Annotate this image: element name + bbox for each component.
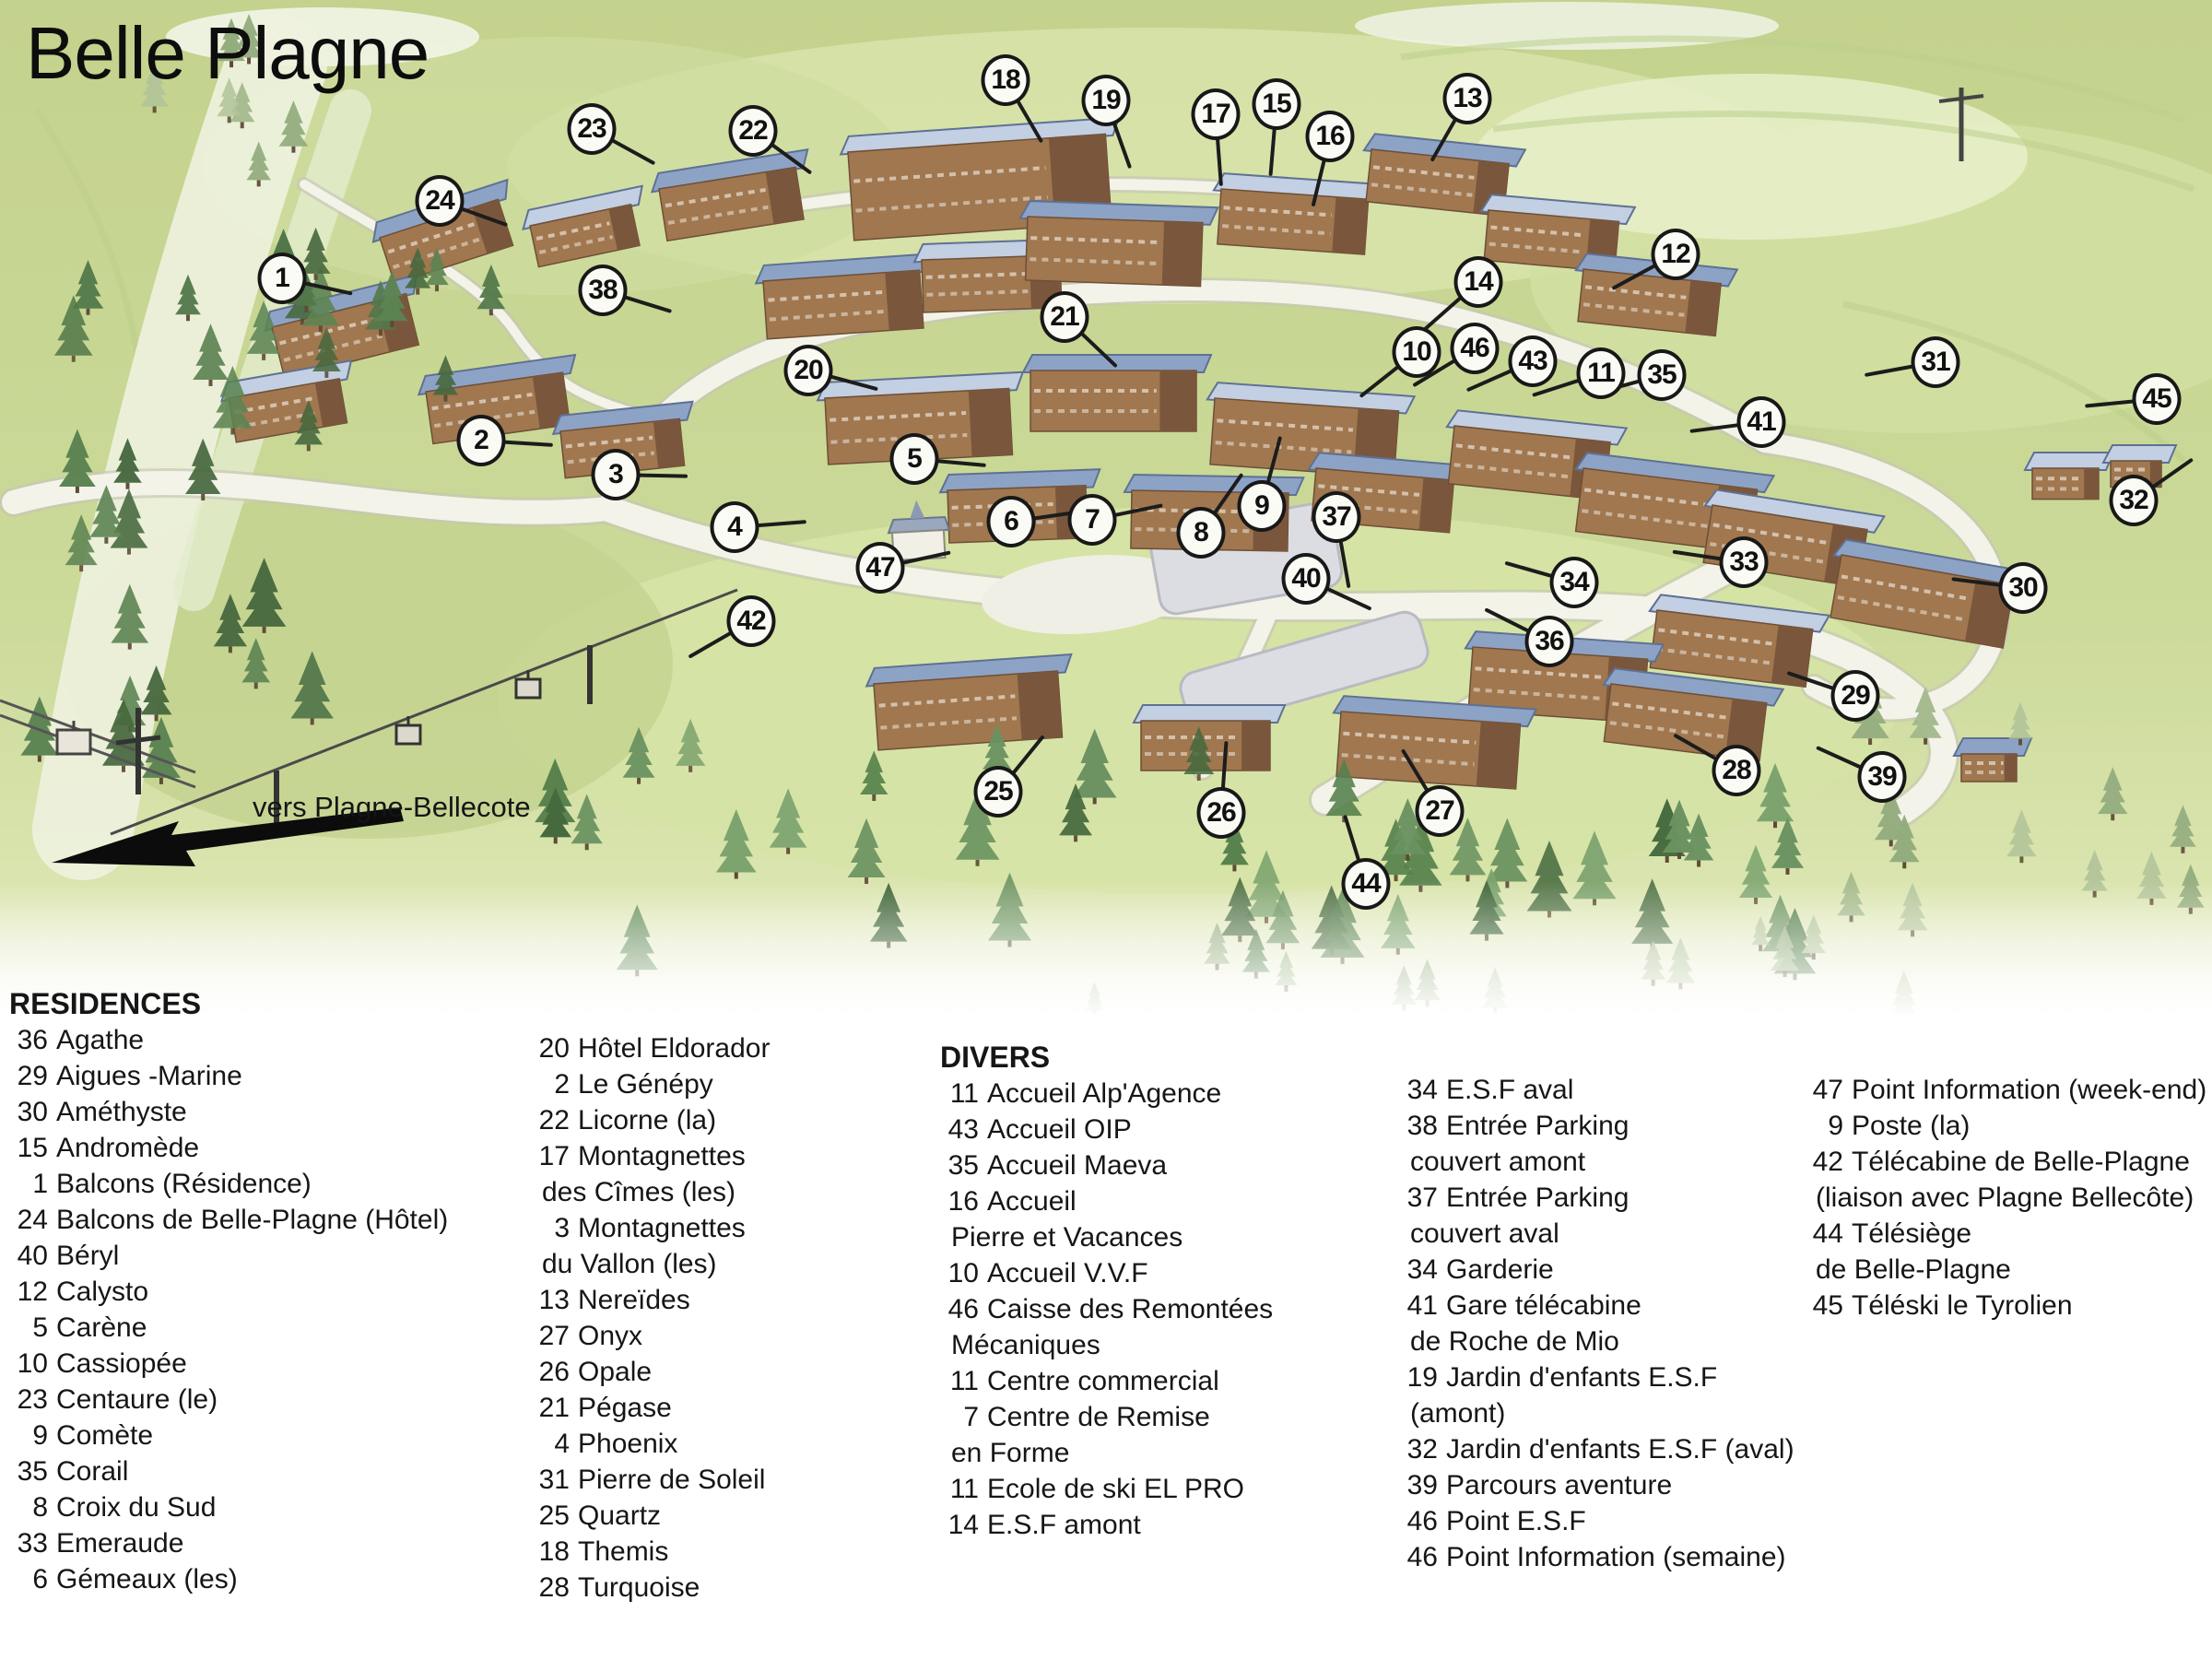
legend-item-label: Centre commercial	[987, 1366, 1219, 1396]
legend-item: 41Gare télécabine	[1399, 1288, 1794, 1324]
chalet-building	[865, 654, 1077, 750]
legend-column-divers-2: 34E.S.F aval38Entrée Parkingcouvert amon…	[1399, 1072, 1794, 1575]
legend-item-number: 24	[9, 1202, 48, 1238]
legend-item: 44Télésiège	[1805, 1216, 2206, 1252]
legend-item-label: Centaure (le)	[56, 1384, 218, 1415]
legend-item-number: 41	[1399, 1288, 1438, 1324]
legend-item: 37Entrée Parking	[1399, 1180, 1794, 1216]
legend-item-number: 7	[940, 1399, 979, 1435]
legend-item: 34Garderie	[1399, 1252, 1794, 1288]
legend-item: 13Nereïdes	[531, 1282, 770, 1318]
building-side	[2150, 461, 2161, 488]
legend-item: 46Point Information (semaine)	[1399, 1539, 1794, 1575]
legend-item: Mécaniques	[940, 1327, 1273, 1363]
legend-item-label: E.S.F aval	[1446, 1075, 1573, 1105]
legend-item-label: Licorne (la)	[578, 1105, 716, 1135]
legend-item-label: Cassiopée	[56, 1348, 187, 1379]
legend-item-label: Le Génépy	[578, 1069, 713, 1100]
legend-item-label: Gare télécabine	[1446, 1290, 1641, 1321]
chalet-building	[1124, 475, 1303, 551]
legend-item: 16Accueil	[940, 1183, 1273, 1219]
building-side	[885, 270, 924, 330]
legend-item: 42Télécabine de Belle-Plagne	[1805, 1144, 2206, 1180]
legend-item-label: Téléski le Tyrolien	[1852, 1290, 2073, 1321]
legend-item-label: Accueil	[987, 1186, 1077, 1217]
legend-item: 33Emeraude	[9, 1525, 448, 1561]
building-side	[1055, 486, 1088, 539]
legend-item: 8Croix du Sud	[9, 1489, 448, 1525]
legend-item-label: Point Information (week-end)	[1852, 1075, 2206, 1105]
legend-item-number: 26	[531, 1354, 570, 1390]
legend-item-number: 18	[531, 1534, 570, 1570]
legend-item-label: Point Information (semaine)	[1446, 1542, 1786, 1572]
legend-item-label: Jardin d'enfants E.S.F (aval)	[1446, 1434, 1794, 1465]
legend-item-label: Caisse des Remontées	[987, 1294, 1273, 1324]
legend-item-number: 34	[1399, 1252, 1438, 1288]
legend-item-label: (amont)	[1410, 1398, 1505, 1429]
legend-item-label: Corail	[56, 1456, 128, 1487]
direction-arrow-label: vers Plagne-Bellecote	[253, 791, 531, 824]
legend-item: 43Accueil OIP	[940, 1112, 1273, 1147]
legend-item-label: Accueil Maeva	[987, 1150, 1167, 1181]
legend-item-label: Point E.S.F	[1446, 1506, 1586, 1536]
legend-item: 1Balcons (Résidence)	[9, 1166, 448, 1202]
legend-item: 19Jardin d'enfants E.S.F	[1399, 1359, 1794, 1395]
legend-item-label: Télécabine de Belle-Plagne	[1852, 1147, 2190, 1177]
legend-item-label: Montagnettes	[578, 1141, 746, 1171]
legend-item-number: 22	[531, 1102, 570, 1138]
legend-item: en Forme	[940, 1435, 1273, 1471]
legend-item: 35Corail	[9, 1453, 448, 1489]
legend-item-number: 15	[9, 1130, 48, 1166]
legend-item-number: 33	[9, 1525, 48, 1561]
legend-item: couvert aval	[1399, 1216, 1794, 1252]
legend-item: 32Jardin d'enfants E.S.F (aval)	[1399, 1431, 1794, 1467]
legend-item-label: Phoenix	[578, 1429, 677, 1459]
legend-item-label: (liaison avec Plagne Bellecôte)	[1816, 1182, 2194, 1213]
legend-item-number: 30	[9, 1094, 48, 1130]
legend-item: 21Pégase	[531, 1390, 770, 1426]
legend-item-label: Balcons (Résidence)	[56, 1169, 312, 1199]
legend-item: 18Themis	[531, 1534, 770, 1570]
building-side	[1332, 197, 1368, 254]
legend-item-label: Andromède	[56, 1133, 199, 1163]
legend-item: 7Centre de Remise	[940, 1399, 1273, 1435]
legend-column-divers-1: DIVERS 11Accueil Alp'Agence43Accueil OIP…	[940, 1040, 1273, 1543]
legend-item-number: 35	[940, 1147, 979, 1183]
legend-item: du Vallon (les)	[531, 1246, 770, 1282]
legend-item-label: Accueil Alp'Agence	[987, 1078, 1221, 1109]
legend-item-number: 6	[9, 1561, 48, 1597]
legend-item-label: Béryl	[56, 1241, 119, 1271]
legend-item-number: 25	[531, 1498, 570, 1534]
legend-item-number: 21	[531, 1390, 570, 1426]
legend-item: Pierre et Vacances	[940, 1219, 1273, 1255]
legend-item: 25Quartz	[531, 1498, 770, 1534]
chalet-building	[755, 253, 938, 339]
legend-item-number: 17	[531, 1138, 570, 1174]
legend-item: 34E.S.F aval	[1399, 1072, 1794, 1108]
legend-item: 30Améthyste	[9, 1094, 448, 1130]
legend-item-label: du Vallon (les)	[542, 1249, 717, 1279]
legend-item-number: 23	[9, 1382, 48, 1418]
legend-item-number: 28	[531, 1570, 570, 1606]
legend-item-number: 34	[1399, 1072, 1438, 1108]
legend-item-number: 40	[9, 1238, 48, 1274]
legend-item-number: 32	[1399, 1431, 1438, 1467]
legend-column-residences-1: RESIDENCES 36Agathe29Aigues -Marine30Amé…	[9, 986, 448, 1597]
building-side	[1159, 371, 1196, 431]
legend-item-number: 10	[9, 1346, 48, 1382]
chalet-building	[1329, 695, 1536, 790]
legend-item-number: 47	[1805, 1072, 1843, 1108]
legend-item-label: Gémeaux (les)	[56, 1564, 238, 1594]
legend-item-label: Pierre et Vacances	[951, 1222, 1182, 1253]
building-roof	[2025, 453, 2113, 470]
building-side	[1419, 477, 1454, 533]
legend-item-number: 9	[1805, 1108, 1843, 1144]
chalet-building	[1018, 201, 1218, 287]
legend-item-label: Turquoise	[578, 1572, 700, 1603]
legend-item: 23Centaure (le)	[9, 1382, 448, 1418]
legend-item-number: 46	[1399, 1539, 1438, 1575]
legend-item-number: 29	[9, 1058, 48, 1094]
legend-item-number: 39	[1399, 1467, 1438, 1503]
legend-item-label: Hôtel Eldorador	[578, 1033, 770, 1064]
legend-item-number: 8	[9, 1489, 48, 1525]
legend-item: 39Parcours aventure	[1399, 1467, 1794, 1503]
legend-item-label: Accueil V.V.F	[987, 1258, 1148, 1288]
legend-item-label: Nereïdes	[578, 1285, 690, 1315]
legend-item: (liaison avec Plagne Bellecôte)	[1805, 1180, 2206, 1216]
legend-item: 11Accueil Alp'Agence	[940, 1076, 1273, 1112]
map-area: 1234567891011121314151617181920212223242…	[0, 0, 2212, 1659]
legend-item: 4Phoenix	[531, 1426, 770, 1462]
legend-item-label: Carène	[56, 1312, 147, 1343]
legend-item-label: en Forme	[951, 1438, 1069, 1468]
legend-item-label: E.S.F amont	[987, 1510, 1141, 1540]
legend-item-number: 3	[531, 1210, 570, 1246]
legend-item: 9Poste (la)	[1805, 1108, 2206, 1144]
legend-item: 20Hôtel Eldorador	[531, 1030, 770, 1066]
legend-item: 11Ecole de ski EL PRO	[940, 1471, 1273, 1507]
legend-item-label: Onyx	[578, 1321, 642, 1351]
legend-item-label: Parcours aventure	[1446, 1470, 1672, 1500]
building-side	[653, 418, 685, 468]
legend-item: des Cîmes (les)	[531, 1174, 770, 1210]
legend-item: 40Béryl	[9, 1238, 448, 1274]
legend-item-number: 12	[9, 1274, 48, 1310]
legend-item: 22Licorne (la)	[531, 1102, 770, 1138]
page-title: Belle Plagne	[26, 11, 429, 96]
legend-column-divers-3: 47Point Information (week-end)9Poste (la…	[1805, 1072, 2206, 1324]
legend-item: 46Caisse des Remontées	[940, 1291, 1273, 1327]
legend-item-number: 37	[1399, 1180, 1438, 1216]
legend-item: 6Gémeaux (les)	[9, 1561, 448, 1597]
legend-item: 10Accueil V.V.F	[940, 1255, 1273, 1291]
legend-item-label: Centre de Remise	[987, 1402, 1210, 1432]
legend-item: 38Entrée Parking	[1399, 1108, 1794, 1144]
legend-item-number: 10	[940, 1255, 979, 1291]
building-side	[1162, 221, 1203, 286]
legend-item: 26Opale	[531, 1354, 770, 1390]
legend-item-number: 31	[531, 1462, 570, 1498]
legend-item: 46Point E.S.F	[1399, 1503, 1794, 1539]
chalet-building	[939, 469, 1101, 543]
legend-item-number: 38	[1399, 1108, 1438, 1144]
legend-item-number: 16	[940, 1183, 979, 1219]
legend-item-label: Agathe	[56, 1025, 144, 1055]
legend-item-label: Quartz	[578, 1500, 661, 1531]
legend-item-label: Garderie	[1446, 1254, 1554, 1285]
legend-item-number: 5	[9, 1310, 48, 1346]
legend-item: 24Balcons de Belle-Plagne (Hôtel)	[9, 1202, 448, 1238]
legend-item: 2Le Génépy	[531, 1066, 770, 1102]
building-side	[1725, 699, 1767, 760]
building-side	[2005, 754, 2017, 782]
legend-item-label: Entrée Parking	[1446, 1111, 1629, 1141]
legend-item-label: Calysto	[56, 1277, 148, 1307]
residences-header: RESIDENCES	[9, 986, 448, 1022]
building-roof	[2103, 445, 2176, 463]
legend-item: 12Calysto	[9, 1274, 448, 1310]
legend-item-label: Jardin d'enfants E.S.F	[1446, 1362, 1717, 1393]
legend-item: de Roche de Mio	[1399, 1324, 1794, 1359]
building-side	[1771, 625, 1813, 687]
legend-item: 9Comète	[9, 1418, 448, 1453]
gondola-cabin	[516, 679, 540, 698]
legend-item: 11Centre commercial	[940, 1363, 1273, 1399]
chalet-building	[817, 372, 1027, 465]
legend-item-number: 11	[940, 1471, 979, 1507]
legend-item-number: 43	[940, 1112, 979, 1147]
legend-item: 45Téléski le Tyrolien	[1805, 1288, 2206, 1324]
legend-item: 31Pierre de Soleil	[531, 1462, 770, 1498]
legend-item-label: Emeraude	[56, 1528, 183, 1559]
legend-item-number: 42	[1805, 1144, 1843, 1180]
legend-item-label: couvert aval	[1410, 1218, 1559, 1249]
building-side	[2084, 468, 2099, 500]
legend-item-label: Entrée Parking	[1446, 1182, 1629, 1213]
legend-item-number: 27	[531, 1318, 570, 1354]
legend-column-residences-2: 20Hôtel Eldorador2Le Génépy22Licorne (la…	[531, 1030, 770, 1606]
legend-item-label: Comète	[56, 1420, 153, 1451]
legend-item-label: Ecole de ski EL PRO	[987, 1474, 1244, 1504]
legend-item-label: de Belle-Plagne	[1816, 1254, 2011, 1285]
legend-item: 17Montagnettes	[531, 1138, 770, 1174]
legend-item-number: 36	[9, 1022, 48, 1058]
legend-item-number: 4	[531, 1426, 570, 1462]
legend-item-label: Themis	[578, 1536, 668, 1567]
legend-item-label: de Roche de Mio	[1410, 1326, 1619, 1357]
building-side	[1477, 722, 1521, 789]
chalet-building	[1210, 172, 1384, 255]
legend-item-number: 46	[1399, 1503, 1438, 1539]
cable-car-cabin	[57, 730, 90, 754]
legend-item-number: 1	[9, 1166, 48, 1202]
legend-item: 35Accueil Maeva	[940, 1147, 1273, 1183]
legend-item-number: 35	[9, 1453, 48, 1489]
legend-item-number: 20	[531, 1030, 570, 1066]
divers-header: DIVERS	[940, 1040, 1273, 1076]
legend-item-label: Poste (la)	[1852, 1111, 1970, 1141]
legend-item: 3Montagnettes	[531, 1210, 770, 1246]
gondola-cabin	[396, 725, 420, 744]
legend-item-label: Télésiège	[1852, 1218, 1971, 1249]
building-side	[1253, 492, 1288, 551]
legend-item-label: Accueil OIP	[987, 1114, 1132, 1145]
building-roof	[1134, 705, 1285, 723]
building-side	[1241, 721, 1270, 771]
chalet-building	[1023, 355, 1211, 431]
legend-item: 14E.S.F amont	[940, 1507, 1273, 1543]
legend-item-number: 45	[1805, 1288, 1843, 1324]
legend-item: 10Cassiopée	[9, 1346, 448, 1382]
legend-item: 29Aigues -Marine	[9, 1058, 448, 1094]
legend-item: 47Point Information (week-end)	[1805, 1072, 2206, 1108]
legend-item-label: Mécaniques	[951, 1330, 1100, 1360]
legend-item: de Belle-Plagne	[1805, 1252, 2206, 1288]
building-side	[1685, 280, 1721, 335]
legend-item: 28Turquoise	[531, 1570, 770, 1606]
legend-item-label: Pierre de Soleil	[578, 1465, 765, 1495]
legend-item: couvert amont	[1399, 1144, 1794, 1180]
legend-item: 36Agathe	[9, 1022, 448, 1058]
legend-item-number: 11	[940, 1363, 979, 1399]
legend-item-label: Croix du Sud	[56, 1492, 216, 1523]
legend-item-number: 46	[940, 1291, 979, 1327]
legend-item-label: couvert amont	[1410, 1147, 1585, 1177]
legend-item-number: 9	[9, 1418, 48, 1453]
legend-item-label: Améthyste	[56, 1097, 187, 1127]
building-roof	[1023, 355, 1211, 372]
legend-item-label: Opale	[578, 1357, 652, 1387]
legend-item-number: 44	[1805, 1216, 1843, 1252]
legend-item: (amont)	[1399, 1395, 1794, 1431]
legend-item-number: 19	[1399, 1359, 1438, 1395]
legend-item-label: Montagnettes	[578, 1213, 746, 1243]
legend-item: 15Andromède	[9, 1130, 448, 1166]
legend-item-label: des Cîmes (les)	[542, 1177, 735, 1207]
building-side	[1018, 671, 1063, 740]
legend-item: 27Onyx	[531, 1318, 770, 1354]
building-side	[969, 389, 1013, 457]
legend-item-number: 14	[940, 1507, 979, 1543]
legend-item-number: 11	[940, 1076, 979, 1112]
legend-item-label: Pégase	[578, 1393, 672, 1423]
legend-item: 5Carène	[9, 1310, 448, 1346]
legend-item-label: Balcons de Belle-Plagne (Hôtel)	[56, 1205, 448, 1235]
chalet-building	[1304, 452, 1470, 534]
legend-item-number: 2	[531, 1066, 570, 1102]
legend-item-label: Aigues -Marine	[56, 1061, 242, 1091]
legend-item-number: 13	[531, 1282, 570, 1318]
